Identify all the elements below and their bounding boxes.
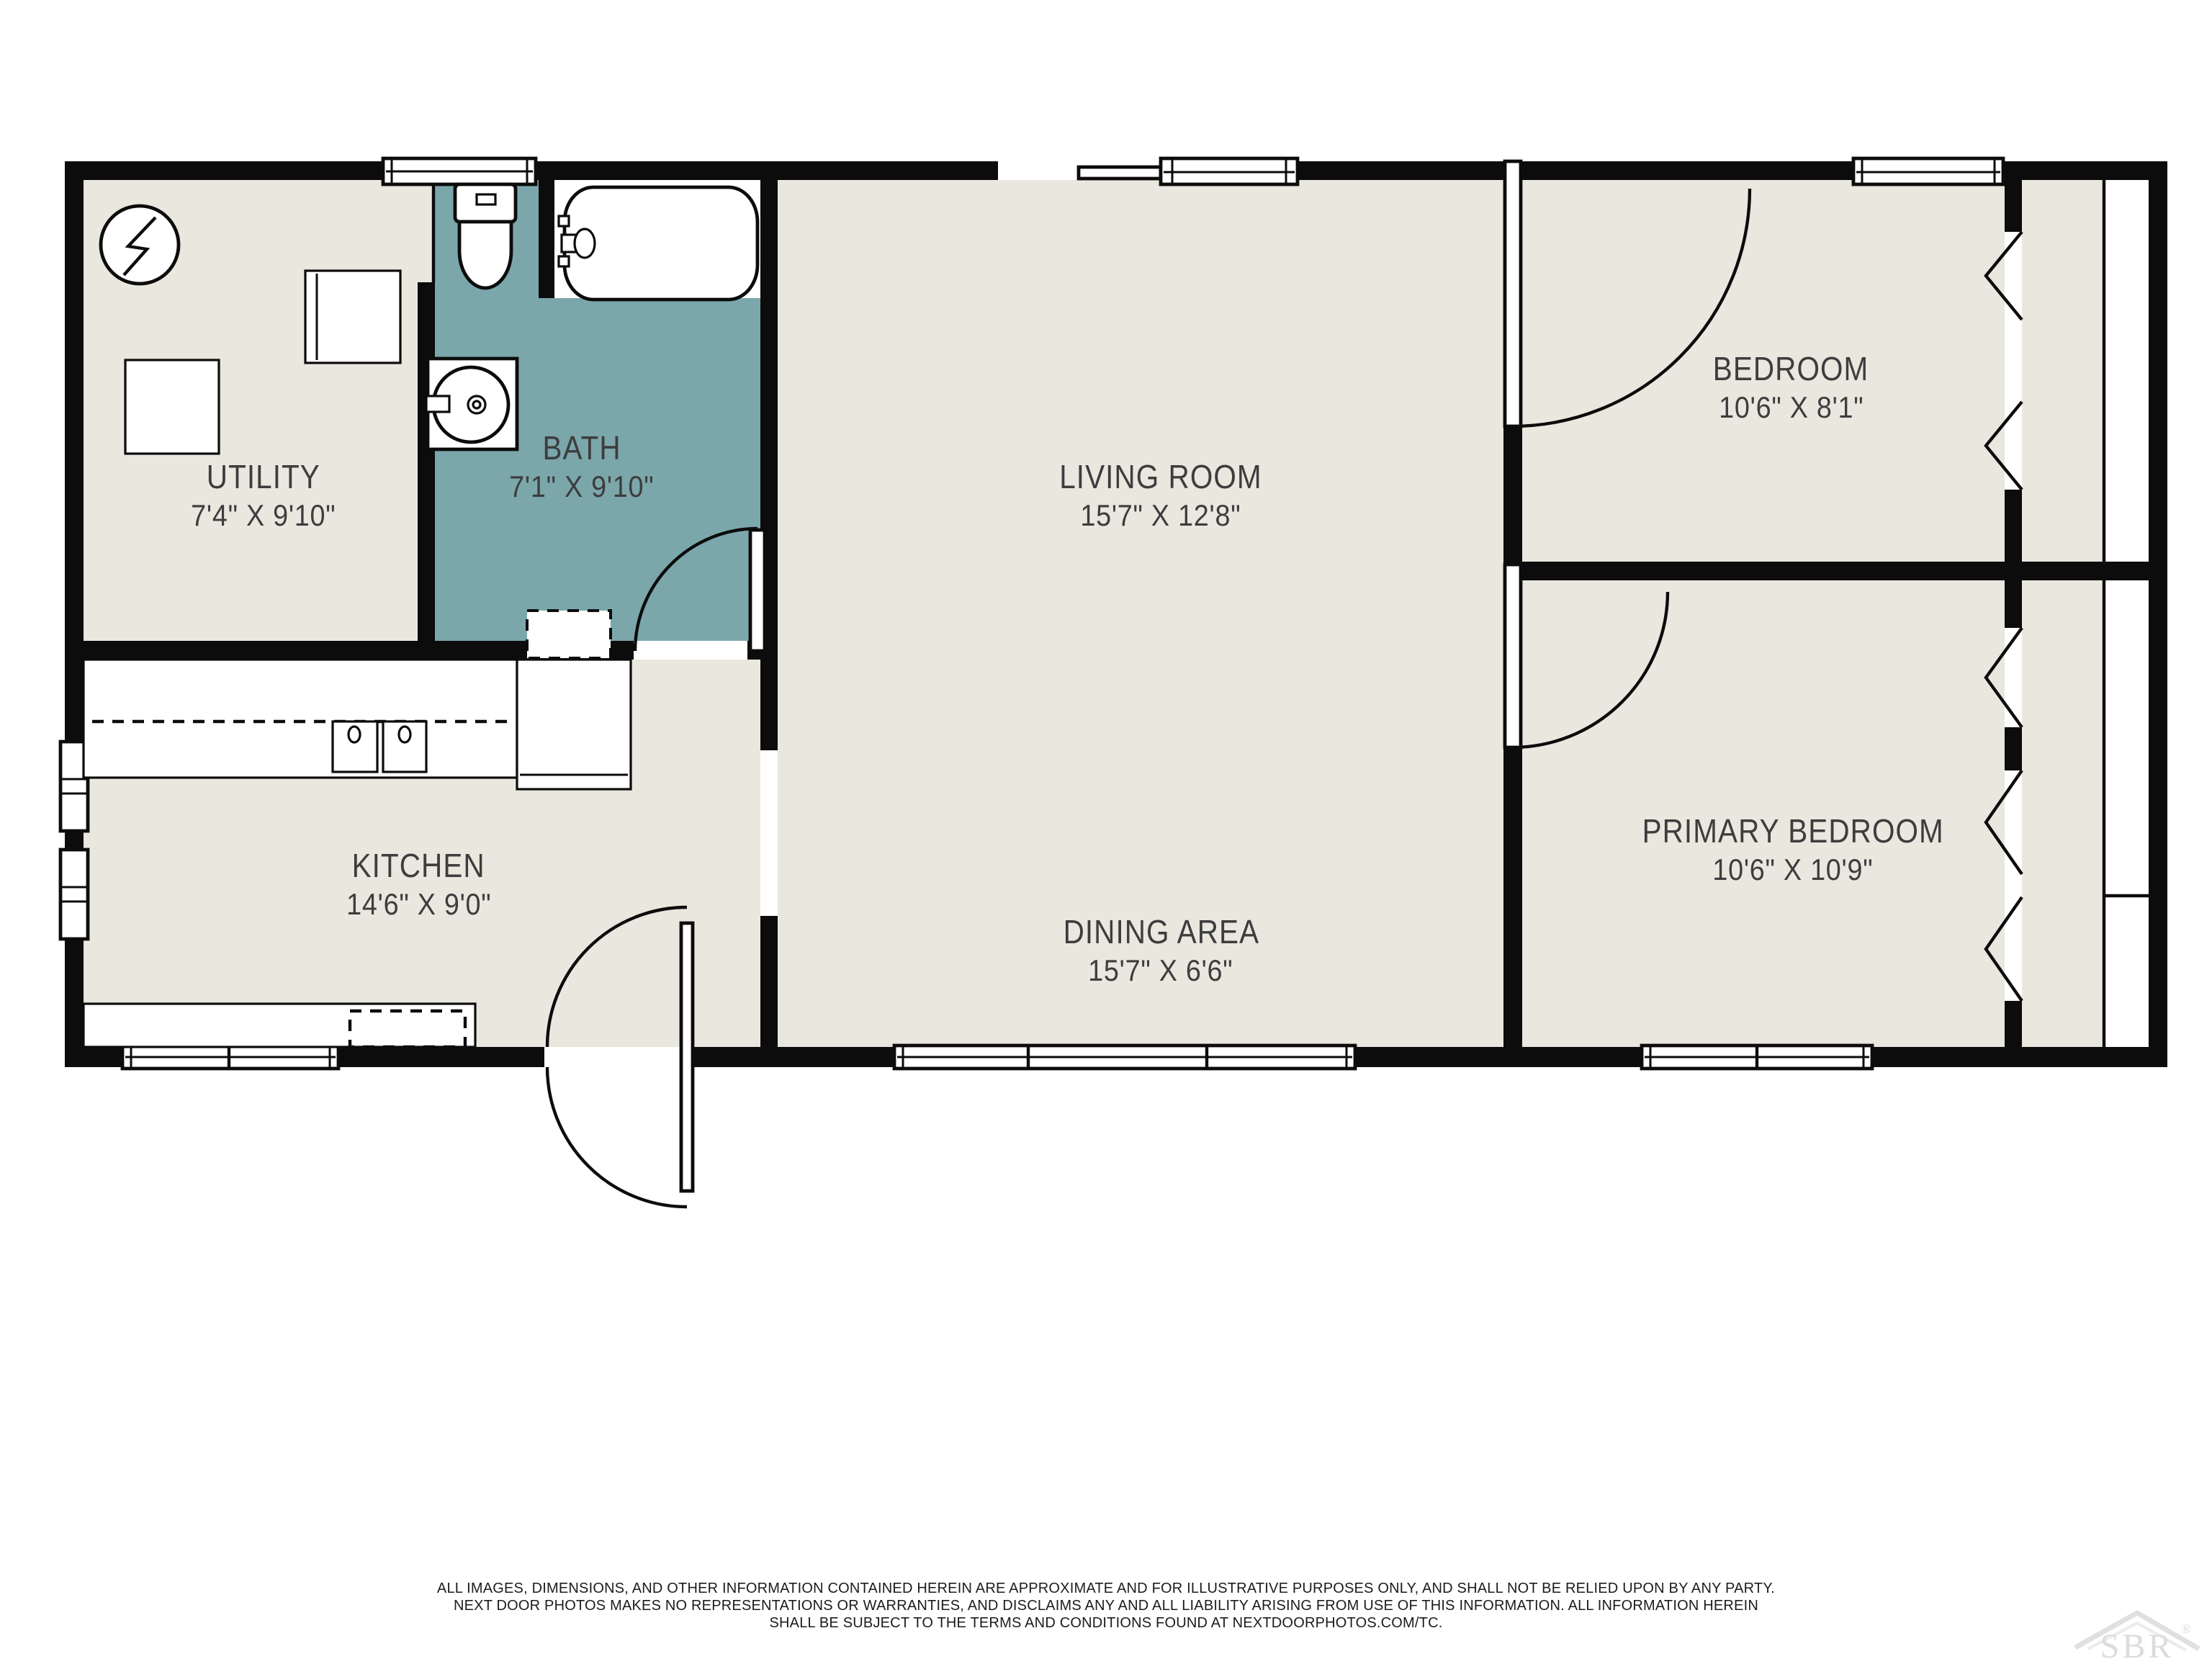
- bedroom-closet-stub-bottom: [2005, 490, 2022, 562]
- utility-appliance-1: [305, 271, 400, 363]
- exterior-step-bar: [1079, 167, 1161, 179]
- room-dims: 15'7" X 12'8": [1080, 500, 1241, 533]
- room-dims: 10'6" X 10'9": [1712, 854, 1873, 887]
- primary-door-leaf: [1505, 565, 1521, 747]
- kitchen-dining-opening: [760, 750, 778, 916]
- page: SBR ® UTILITY 7'4" X 9'10" BATH 7'1" X 9…: [0, 0, 2212, 1659]
- kitchen-side-window-lower: [60, 850, 88, 939]
- room-name: PRIMARY BEDROOM: [1642, 812, 1943, 850]
- utility-appliance-2: [125, 360, 219, 454]
- room-label-kitchen: KITCHEN 14'6" X 9'0": [131, 847, 707, 922]
- primary-closet-opening-1: [2005, 628, 2022, 727]
- disclaimer-line-1: ALL IMAGES, DIMENSIONS, AND OTHER INFORM…: [0, 1581, 2212, 1599]
- kitchen-lower-counter: [84, 1004, 475, 1047]
- room-dims: 7'4" X 9'10": [191, 500, 336, 533]
- wall-top-bedroom: [1522, 161, 1853, 180]
- primary-closet-stub-mid: [2005, 727, 2022, 770]
- primary-closet-stub-bottom: [2005, 1001, 2022, 1047]
- living-room-window: [1161, 158, 1298, 184]
- electrical-panel-icon: [101, 206, 179, 284]
- entry-door-arc-outer: [547, 1067, 687, 1207]
- wall-bedroom-primary: [1503, 562, 2149, 580]
- room-dims: 15'7" X 6'6": [1088, 955, 1233, 988]
- bath-door-leaf: [750, 530, 765, 651]
- wall-kitchen-dining-lower: [760, 916, 778, 1047]
- room-name: BATH: [542, 429, 621, 467]
- wall-right: [2149, 161, 2167, 1067]
- primary-closet-stub-top: [2005, 580, 2022, 628]
- wall-tub-niche-stub: [539, 180, 554, 298]
- disclaimer-line-2: NEXT DOOR PHOTOS MAKES NO REPRESENTATION…: [0, 1599, 2212, 1616]
- toilet: [455, 184, 516, 288]
- bath-window: [383, 158, 536, 184]
- dining-window: [894, 1046, 1355, 1069]
- room-label-living-room: LIVING ROOM 15'7" X 12'8": [873, 458, 1449, 533]
- bedroom-closet-cavity: [2105, 180, 2149, 562]
- room-label-bath: BATH 7'1" X 9'10": [294, 429, 870, 504]
- wall-living-bedroom: [1503, 426, 1522, 562]
- wall-kitchen-dining-upper: [760, 660, 778, 750]
- room-name: DINING AREA: [1063, 913, 1259, 950]
- room-dims: 10'6" X 8'1": [1719, 392, 1863, 425]
- wall-top-mid: [1298, 161, 1503, 180]
- entry-door-leaf: [681, 923, 693, 1191]
- primary-closet-cavity: [2105, 580, 2149, 1047]
- room-name: KITCHEN: [352, 847, 485, 884]
- room-dims: 14'6" X 9'0": [346, 889, 491, 922]
- refrigerator: [517, 660, 631, 789]
- entry-door-opening: [544, 1047, 687, 1067]
- disclaimer-line-3: SHALL BE SUBJECT TO THE TERMS AND CONDIT…: [0, 1616, 2212, 1633]
- room-label-bedroom: BEDROOM 10'6" X 8'1": [1503, 350, 2080, 425]
- room-dims: 7'1" X 9'10": [509, 471, 654, 504]
- bedroom-closet-stub-top: [2005, 180, 2022, 232]
- room-name: BEDROOM: [1714, 350, 1870, 387]
- primary-bedroom-window: [1642, 1046, 1872, 1069]
- disclaimer: ALL IMAGES, DIMENSIONS, AND OTHER INFORM…: [0, 1581, 2212, 1633]
- kitchen-counter: [84, 660, 517, 778]
- room-name: LIVING ROOM: [1059, 458, 1262, 495]
- bath-door-opening: [634, 641, 747, 660]
- room-label-dining-area: DINING AREA 15'7" X 6'6": [873, 913, 1449, 988]
- bathtub: [559, 187, 757, 300]
- room-label-primary-bedroom: PRIMARY BEDROOM 10'6" X 10'9": [1505, 812, 2081, 887]
- bath-floor-vent: [527, 611, 611, 658]
- floor-plan-canvas: SBR ® UTILITY 7'4" X 9'10" BATH 7'1" X 9…: [0, 0, 2212, 1659]
- bedroom-window: [1853, 158, 2003, 184]
- kitchen-bottom-window: [122, 1046, 338, 1069]
- wall-dining-primary: [1503, 747, 1522, 1047]
- wall-top-right: [2003, 161, 2167, 180]
